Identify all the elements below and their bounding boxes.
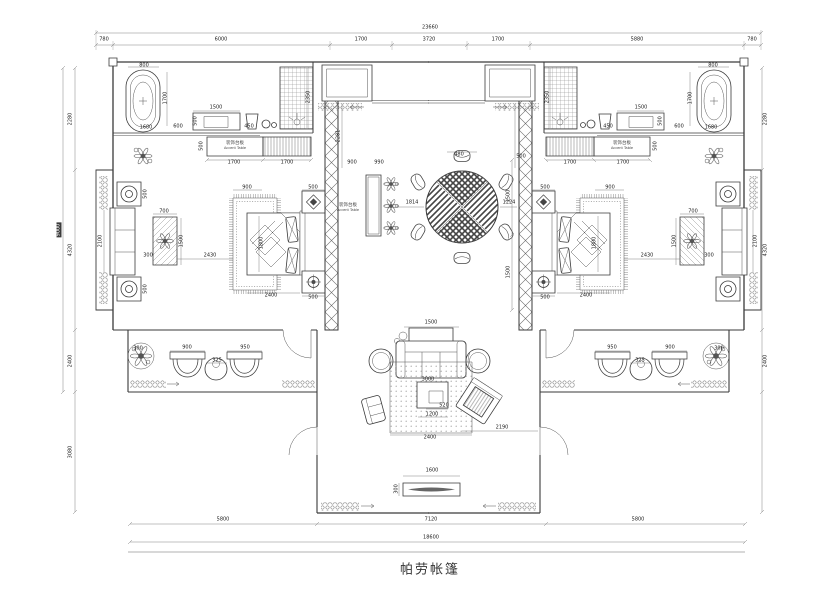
corner-plant [134, 147, 152, 164]
door-deck[interactable] [289, 427, 317, 455]
walls [109, 58, 429, 513]
accent-console-label: 装饰台板 Accent Table [337, 203, 359, 213]
nightstand-bottom [302, 271, 325, 293]
terrace-curtains [130, 380, 315, 388]
bench-sofa [110, 208, 135, 275]
side-table-bottom [117, 277, 141, 301]
coffee-table [417, 382, 448, 408]
door-bedroom-terrace[interactable] [283, 330, 311, 358]
bathtub [126, 70, 160, 132]
central-area [361, 151, 538, 497]
terrace-table [205, 358, 227, 380]
accent-console-label-en: Accent Table [337, 209, 359, 213]
side-table-top [117, 182, 141, 206]
closet [322, 65, 372, 101]
lounge-chair-right [227, 352, 262, 377]
vanity [193, 113, 240, 130]
shower [280, 67, 313, 129]
nightstand-top [302, 191, 325, 213]
bed [247, 211, 305, 275]
accent-table-label-left: 装饰台板 Accent Table [224, 141, 246, 151]
drawing-title: 帕劳帐篷 [400, 559, 460, 578]
lattice-wall [325, 100, 338, 330]
planter [153, 217, 177, 265]
deck-corner-curtain [321, 502, 374, 511]
right-wing-mirror [428, 58, 761, 513]
dining-table [426, 171, 498, 243]
accent-table-cabinet [207, 137, 311, 156]
console-plants [384, 177, 399, 235]
accent-table-label-right: 装饰台板 Accent Table [611, 141, 633, 151]
left-wing [96, 58, 429, 513]
dimension-chains [61, 30, 764, 552]
accent-table-label-left-en: Accent Table [224, 147, 246, 151]
floorplan: 2366078060001700372017005880780580071205… [0, 0, 837, 592]
small-chair [361, 395, 386, 425]
lounge-chair-left [170, 352, 205, 377]
accent-table-label-right-en: Accent Table [611, 147, 633, 151]
vanity-stool [246, 114, 277, 129]
terrace-plant [128, 343, 154, 369]
console-table [366, 175, 381, 236]
deck-bench [403, 483, 460, 496]
floorplan-svg [0, 0, 837, 592]
round-chair-left [369, 349, 393, 373]
entry-curtain [318, 103, 364, 111]
